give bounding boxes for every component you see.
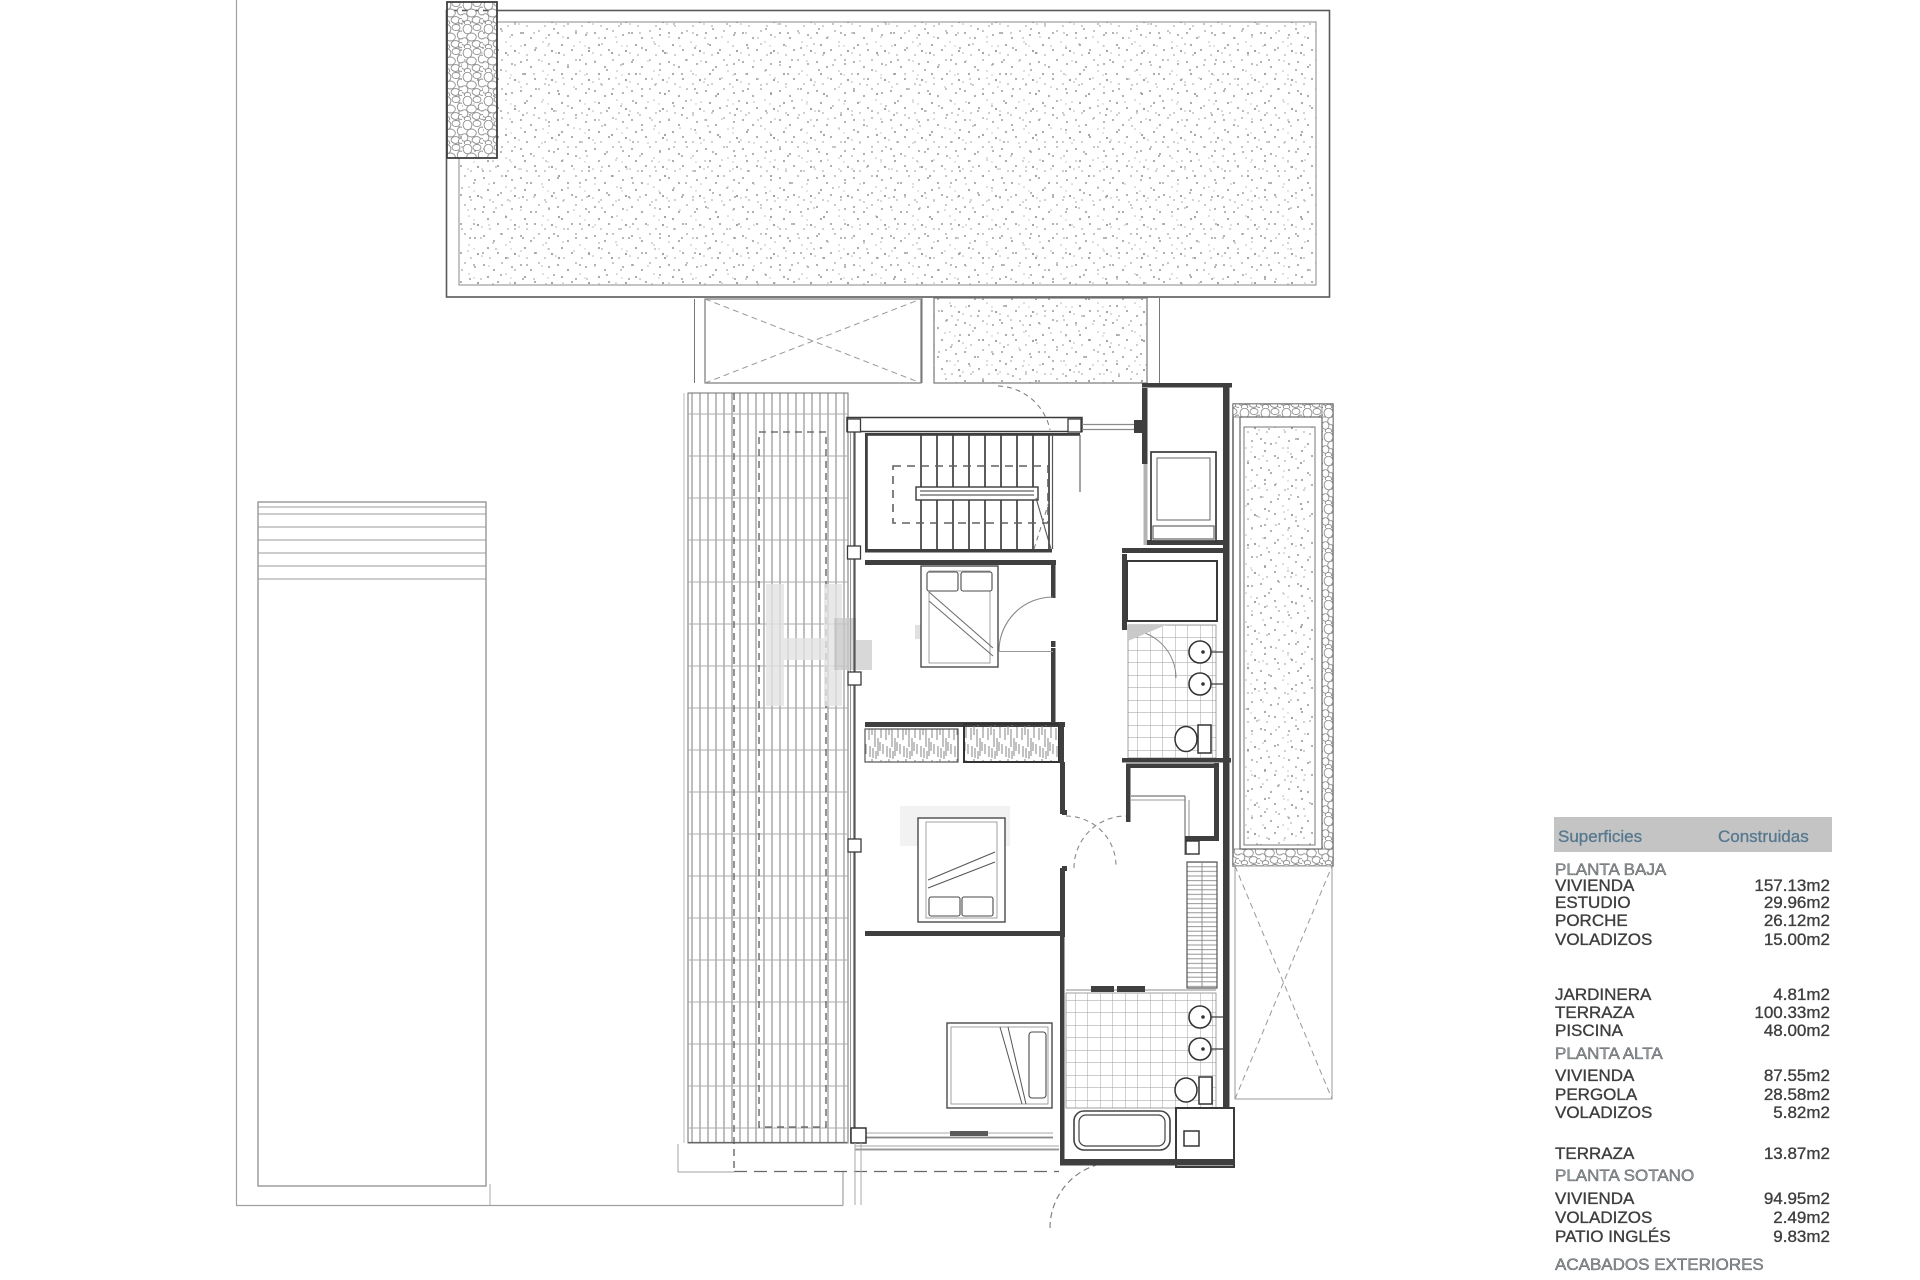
svg-text:VIVIENDA: VIVIENDA <box>1555 1189 1635 1208</box>
svg-text:28.58m2: 28.58m2 <box>1764 1085 1830 1104</box>
svg-text:PATIO INGLÉS: PATIO INGLÉS <box>1555 1227 1671 1246</box>
svg-text:48.00m2: 48.00m2 <box>1764 1021 1830 1040</box>
svg-text:ESTUDIO: ESTUDIO <box>1555 893 1631 912</box>
svg-text:ACABADOS EXTERIORES: ACABADOS EXTERIORES <box>1555 1255 1764 1274</box>
svg-text:JARDINERA: JARDINERA <box>1555 985 1652 1004</box>
svg-text:29.96m2: 29.96m2 <box>1764 893 1830 912</box>
svg-text:4.81m2: 4.81m2 <box>1773 985 1830 1004</box>
svg-text:15.00m2: 15.00m2 <box>1764 930 1830 949</box>
svg-text:PISCINA: PISCINA <box>1555 1021 1624 1040</box>
svg-text:87.55m2: 87.55m2 <box>1764 1066 1830 1085</box>
svg-text:TERRAZA: TERRAZA <box>1555 1003 1635 1022</box>
svg-text:94.95m2: 94.95m2 <box>1764 1189 1830 1208</box>
svg-text:VOLADIZOS: VOLADIZOS <box>1555 1103 1652 1122</box>
svg-text:100.33m2: 100.33m2 <box>1754 1003 1830 1022</box>
svg-text:VIVIENDA: VIVIENDA <box>1555 1066 1635 1085</box>
svg-text:PLANTA ALTA: PLANTA ALTA <box>1555 1044 1663 1063</box>
svg-text:VOLADIZOS: VOLADIZOS <box>1555 1208 1652 1227</box>
svg-text:9.83m2: 9.83m2 <box>1773 1227 1830 1246</box>
svg-text:Construidas: Construidas <box>1718 827 1809 846</box>
svg-text:13.87m2: 13.87m2 <box>1764 1144 1830 1163</box>
svg-text:2.49m2: 2.49m2 <box>1773 1208 1830 1227</box>
svg-text:5.82m2: 5.82m2 <box>1773 1103 1830 1122</box>
svg-text:PLANTA SOTANO: PLANTA SOTANO <box>1555 1166 1694 1185</box>
svg-text:PERGOLA: PERGOLA <box>1555 1085 1638 1104</box>
svg-text:TERRAZA: TERRAZA <box>1555 1144 1635 1163</box>
svg-text:VOLADIZOS: VOLADIZOS <box>1555 930 1652 949</box>
svg-text:26.12m2: 26.12m2 <box>1764 911 1830 930</box>
svg-text:Superficies: Superficies <box>1558 827 1642 846</box>
svg-text:PORCHE: PORCHE <box>1555 911 1628 930</box>
